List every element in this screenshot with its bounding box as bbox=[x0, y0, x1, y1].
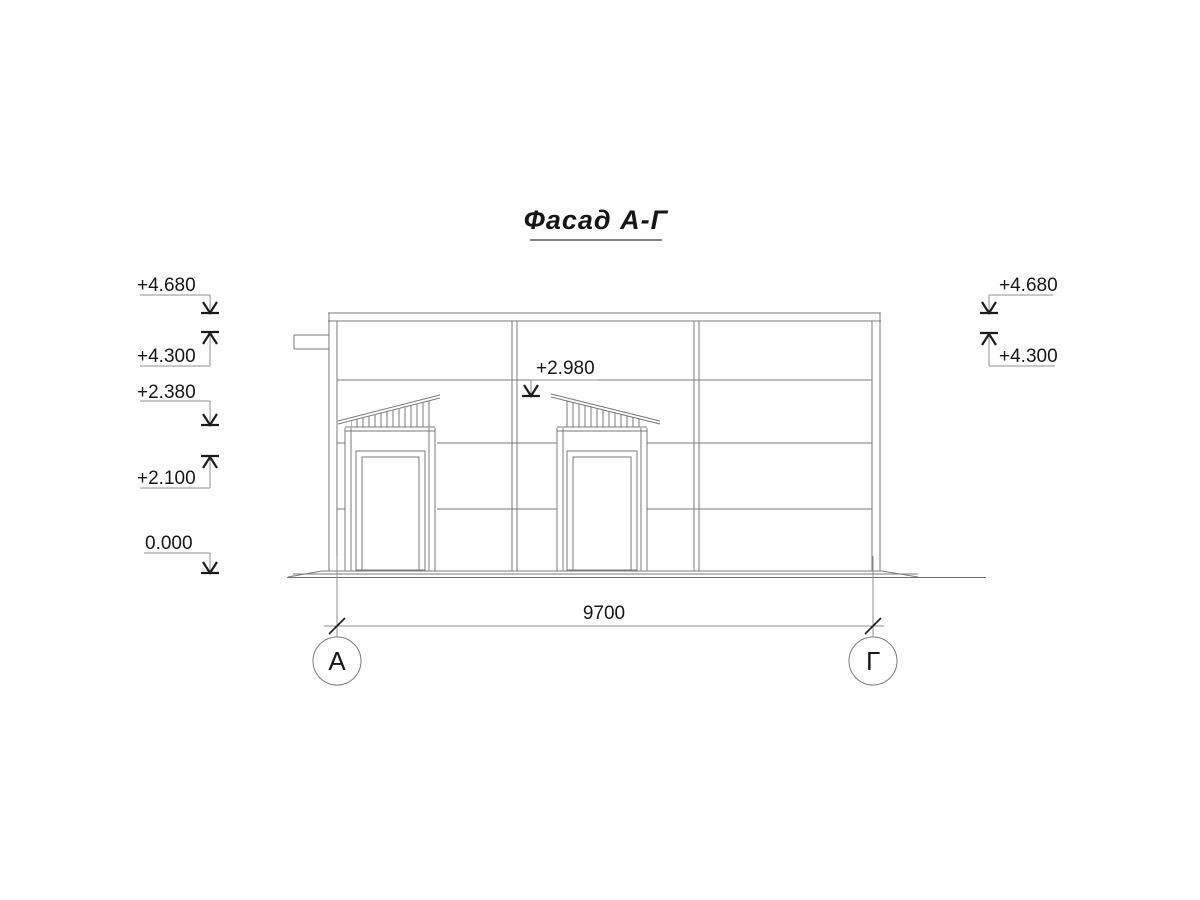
elevation-arrows bbox=[201, 302, 998, 573]
right-wall bbox=[872, 313, 880, 571]
right-door-posts bbox=[557, 428, 647, 571]
leader-right-4680 bbox=[989, 295, 1053, 311]
leader-left-4680 bbox=[140, 295, 210, 311]
right-canopy-beam bbox=[557, 427, 647, 431]
left-entrance bbox=[338, 395, 440, 571]
elevation-label-right-4680: +4.680 bbox=[999, 276, 1058, 296]
leader-center-2980 bbox=[530, 380, 597, 394]
right-door-frame bbox=[567, 451, 637, 570]
elevation-label-center-2980: +2.980 bbox=[536, 359, 595, 379]
elevation-label-left-0000: 0.000 bbox=[145, 534, 193, 554]
elevation-leaders bbox=[140, 295, 1055, 571]
elevation-label-right-4300: +4.300 bbox=[999, 347, 1058, 367]
plinth-and-ground bbox=[287, 571, 986, 578]
building-outline bbox=[294, 313, 881, 571]
axis-label-g: Г bbox=[849, 637, 897, 685]
right-entrance bbox=[551, 394, 660, 571]
drawing-sheet: Фасад А-Г +4.680 +4.300 +2.380 +2.100 0.… bbox=[0, 0, 1200, 900]
left-canopy-hatch bbox=[351, 401, 430, 427]
facade-drawing bbox=[0, 0, 1200, 900]
parapet-band bbox=[328, 313, 881, 321]
elevation-label-left-4300: +4.300 bbox=[137, 347, 196, 367]
right-door-leaf bbox=[573, 457, 631, 570]
column-joint-2 bbox=[694, 321, 699, 571]
axis-extension-lines bbox=[337, 556, 873, 637]
elevation-label-left-2100: +2.100 bbox=[137, 469, 196, 489]
drawing-title: Фасад А-Г bbox=[480, 206, 712, 234]
leader-left-2380 bbox=[140, 401, 210, 423]
leader-left-0000 bbox=[144, 553, 210, 571]
dimension-label: 9700 bbox=[562, 604, 646, 624]
left-wall bbox=[329, 313, 337, 571]
left-door-frame bbox=[356, 451, 425, 570]
elevation-label-left-4680: +4.680 bbox=[137, 276, 196, 296]
gutter-outlet bbox=[294, 335, 329, 349]
elevation-label-left-2380: +2.380 bbox=[137, 383, 196, 403]
left-door-leaf bbox=[362, 457, 419, 570]
axis-label-a: А bbox=[313, 637, 361, 685]
column-joint-1 bbox=[512, 321, 517, 571]
left-canopy-beam bbox=[345, 427, 435, 431]
left-door-posts bbox=[345, 428, 435, 571]
